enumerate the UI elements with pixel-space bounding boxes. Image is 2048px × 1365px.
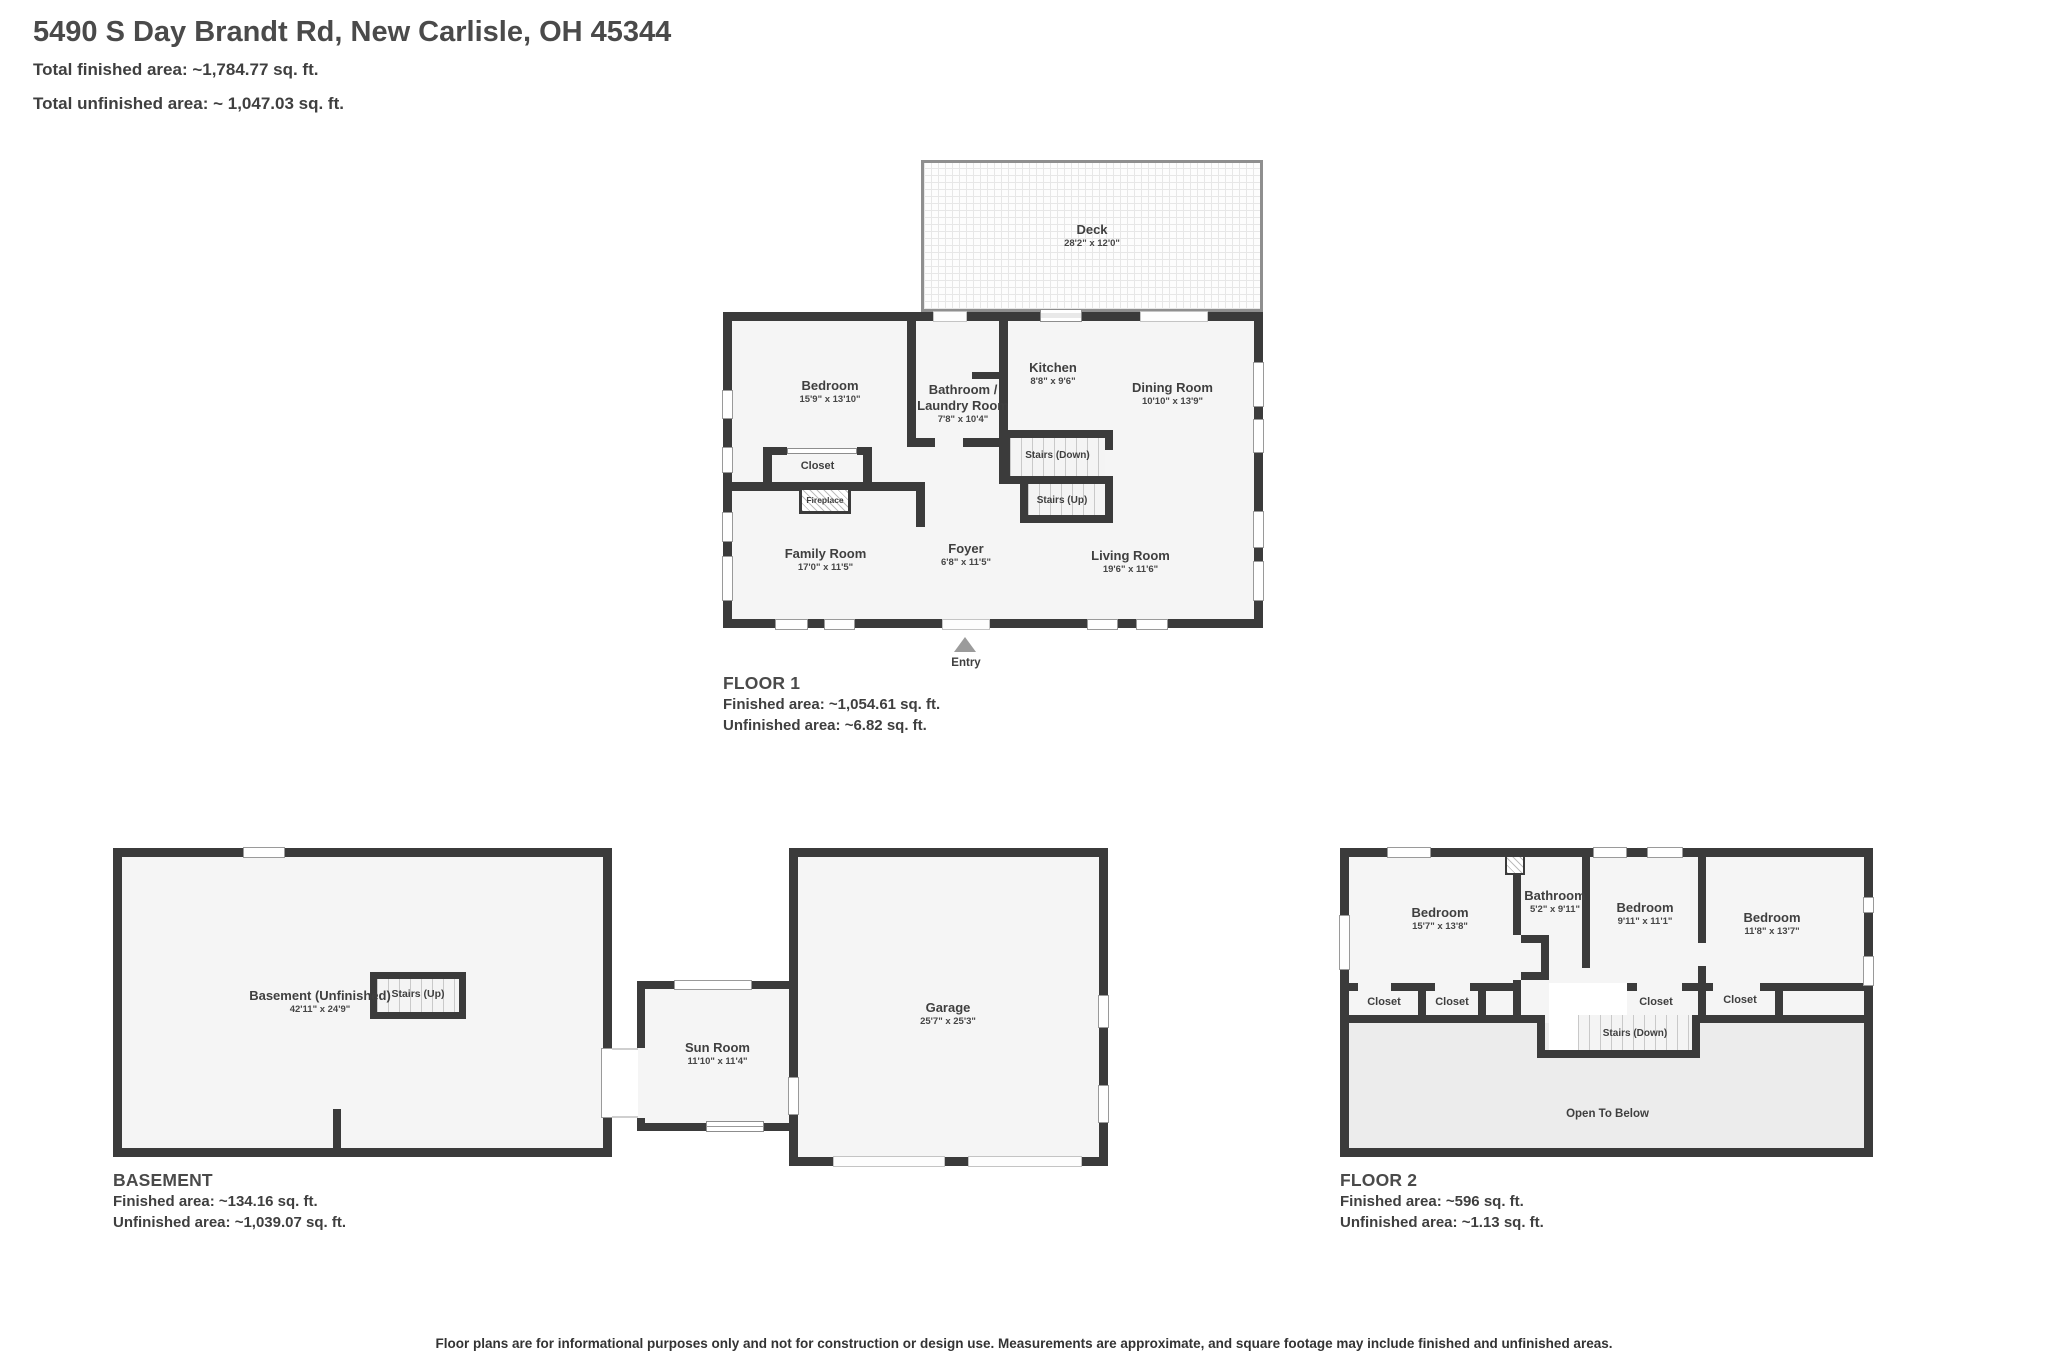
floor2-title: FLOOR 2 bbox=[1340, 1170, 1417, 1191]
room-dims: 5'2" x 9'11" bbox=[1505, 904, 1605, 916]
bathroom-laundry-label: Bathroom / Laundry Room 7'8" x 10'4" bbox=[898, 382, 1028, 426]
basement-unfinished: Unfinished area: ~1,039.07 sq. ft. bbox=[113, 1214, 346, 1231]
window bbox=[1087, 619, 1118, 630]
room-dims: 25'7" x 25'3" bbox=[873, 1016, 1023, 1028]
stairs-down-label: Stairs (Down) bbox=[1002, 450, 1113, 461]
room-name: Basement (Unfinished) bbox=[220, 988, 420, 1004]
bedroom-label: Bedroom 15'9" x 13'10" bbox=[755, 378, 905, 406]
window bbox=[243, 847, 285, 858]
window bbox=[1098, 1085, 1109, 1123]
room-name: Bathroom bbox=[1505, 888, 1605, 904]
wall bbox=[907, 438, 935, 447]
closet-label: Closet bbox=[1621, 996, 1691, 1008]
closet-label: Closet bbox=[770, 460, 865, 472]
wall bbox=[1002, 430, 1113, 438]
room-dims: 7'8" x 10'4" bbox=[898, 414, 1028, 426]
room-dims: 6'8" x 11'5" bbox=[917, 557, 1015, 569]
wall bbox=[1391, 983, 1435, 991]
room-name: Living Room bbox=[1058, 548, 1203, 564]
floor2-stairs-label: Stairs (Down) bbox=[1578, 1028, 1692, 1039]
stairs-up-label: Stairs (Up) bbox=[1012, 495, 1112, 506]
dining-room-label: Dining Room 10'10" x 13'9" bbox=[1105, 380, 1240, 408]
window bbox=[1136, 619, 1168, 630]
closet-label: Closet bbox=[1705, 994, 1775, 1006]
floorplan-page: 5490 S Day Brandt Rd, New Carlisle, OH 4… bbox=[0, 0, 2048, 1365]
wall bbox=[1698, 857, 1706, 943]
window bbox=[1253, 511, 1264, 548]
deck-sliding-door bbox=[1040, 309, 1082, 322]
wall bbox=[1349, 983, 1358, 991]
window bbox=[1647, 847, 1683, 858]
room-name: Garage bbox=[873, 1000, 1023, 1016]
door-opening bbox=[933, 311, 967, 322]
room-dims: 10'10" x 13'9" bbox=[1105, 396, 1240, 408]
wall bbox=[1002, 476, 1113, 484]
floor1-finished: Finished area: ~1,054.61 sq. ft. bbox=[723, 696, 940, 713]
open-to-below-label: Open To Below bbox=[1500, 1108, 1715, 1120]
bedroom-left-label: Bedroom 15'7" x 13'8" bbox=[1365, 905, 1515, 933]
room-dims: 15'7" x 13'8" bbox=[1365, 921, 1515, 933]
window bbox=[1339, 915, 1350, 970]
room-name: Dining Room bbox=[1105, 380, 1240, 396]
window bbox=[1253, 362, 1264, 407]
wall bbox=[1020, 515, 1113, 523]
entry-label: Entry bbox=[926, 657, 1006, 669]
passage bbox=[612, 1048, 638, 1118]
room-name: Bedroom bbox=[1365, 905, 1515, 921]
family-room-label: Family Room 17'0" x 11'5" bbox=[758, 546, 893, 574]
floor1-unfinished: Unfinished area: ~6.82 sq. ft. bbox=[723, 717, 927, 734]
room-name: Sun Room bbox=[645, 1040, 790, 1056]
room-dims: 8'8" x 9'6" bbox=[1000, 376, 1106, 388]
room-name: Family Room bbox=[758, 546, 893, 562]
window bbox=[1253, 561, 1264, 601]
wall bbox=[1521, 972, 1549, 980]
floor1-title: FLOOR 1 bbox=[723, 673, 800, 694]
bathroom-label: Bathroom 5'2" x 9'11" bbox=[1505, 888, 1605, 916]
deck-name: Deck bbox=[921, 222, 1263, 238]
window bbox=[722, 512, 733, 542]
entry-arrow-icon bbox=[954, 637, 976, 652]
total-unfinished-area: Total unfinished area: ~ 1,047.03 sq. ft… bbox=[33, 94, 344, 114]
wall bbox=[1349, 1015, 1538, 1023]
bedroom-mid-label: Bedroom 9'11" x 11'1" bbox=[1595, 900, 1695, 928]
basement-room-label: Basement (Unfinished) 42'11" x 24'9" bbox=[220, 988, 420, 1016]
deck-dims: 28'2" x 12'0" bbox=[921, 238, 1263, 250]
wall bbox=[907, 312, 916, 447]
wall bbox=[333, 1109, 341, 1157]
kitchen-label: Kitchen 8'8" x 9'6" bbox=[1000, 360, 1106, 388]
window bbox=[1098, 995, 1109, 1028]
chimney bbox=[1505, 855, 1525, 875]
room-name: Bedroom bbox=[1595, 900, 1695, 916]
window bbox=[788, 1077, 799, 1115]
page-title: 5490 S Day Brandt Rd, New Carlisle, OH 4… bbox=[33, 16, 671, 49]
room-dims: 19'6" x 11'6" bbox=[1058, 564, 1203, 576]
closet-label: Closet bbox=[1349, 996, 1419, 1008]
garage-label: Garage 25'7" x 25'3" bbox=[873, 1000, 1023, 1028]
wall bbox=[916, 491, 925, 527]
window bbox=[1593, 847, 1627, 858]
room-name: Foyer bbox=[917, 541, 1015, 557]
fireplace-label: Fireplace bbox=[799, 495, 851, 505]
room-dims: 9'11" x 11'1" bbox=[1595, 916, 1695, 928]
bedroom-right-label: Bedroom 11'8" x 13'7" bbox=[1722, 910, 1822, 938]
disclaimer-text: Floor plans are for informational purpos… bbox=[0, 1336, 2048, 1351]
wall bbox=[637, 981, 645, 1048]
room-dims: 11'10" x 11'4" bbox=[645, 1056, 790, 1068]
room-name: Bedroom bbox=[1722, 910, 1822, 926]
wall bbox=[1627, 983, 1637, 991]
window bbox=[1387, 847, 1431, 858]
sunroom-label: Sun Room 11'10" x 11'4" bbox=[645, 1040, 790, 1068]
room-dims: 17'0" x 11'5" bbox=[758, 562, 893, 574]
room-name: Bedroom bbox=[755, 378, 905, 394]
room-dims: 15'9" x 13'10" bbox=[755, 394, 905, 406]
wall bbox=[1775, 983, 1783, 1017]
window bbox=[722, 390, 733, 419]
total-finished-area: Total finished area: ~1,784.77 sq. ft. bbox=[33, 60, 318, 80]
entry-door-opening bbox=[942, 619, 990, 630]
window bbox=[775, 619, 808, 630]
room-dims: 11'8" x 13'7" bbox=[1722, 926, 1822, 938]
garage-door-opening bbox=[968, 1156, 1082, 1167]
wall bbox=[1682, 983, 1713, 991]
deck-label: Deck 28'2" x 12'0" bbox=[921, 222, 1263, 250]
wall bbox=[1700, 1015, 1864, 1023]
window bbox=[1863, 897, 1874, 913]
floor2-finished: Finished area: ~596 sq. ft. bbox=[1340, 1193, 1524, 1210]
window bbox=[722, 447, 733, 473]
window bbox=[1863, 956, 1874, 986]
room-name: Laundry Room bbox=[898, 398, 1028, 414]
window bbox=[706, 1121, 764, 1132]
floor2-unfinished: Unfinished area: ~1.13 sq. ft. bbox=[1340, 1214, 1544, 1231]
wall bbox=[1537, 1050, 1700, 1058]
wall bbox=[972, 372, 1002, 379]
window bbox=[674, 980, 752, 990]
room-name: Kitchen bbox=[1000, 360, 1106, 376]
wall bbox=[1105, 430, 1113, 450]
window bbox=[1253, 419, 1264, 453]
window bbox=[722, 556, 733, 601]
closet-label: Closet bbox=[1417, 996, 1487, 1008]
living-room-label: Living Room 19'6" x 11'6" bbox=[1058, 548, 1203, 576]
basement-finished: Finished area: ~134.16 sq. ft. bbox=[113, 1193, 318, 1210]
window bbox=[824, 619, 855, 630]
wall bbox=[1470, 983, 1515, 991]
closet-sliding-door bbox=[787, 448, 857, 454]
garage-door-opening bbox=[833, 1156, 945, 1167]
window bbox=[1140, 311, 1208, 322]
basement-title: BASEMENT bbox=[113, 1170, 213, 1191]
foyer-label: Foyer 6'8" x 11'5" bbox=[917, 541, 1015, 569]
room-dims: 42'11" x 24'9" bbox=[220, 1004, 420, 1016]
